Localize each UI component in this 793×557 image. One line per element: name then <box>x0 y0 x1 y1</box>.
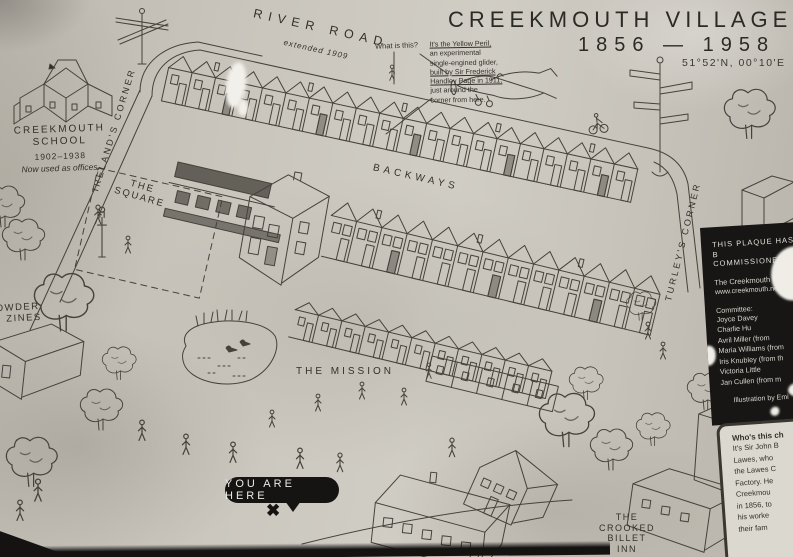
plaque-credit: Illustration by Emi <box>721 392 793 405</box>
billet-line: CROOKED <box>588 523 666 534</box>
commission-plaque: THIS PLAQUE HAS B COMMISSIONED BY The Cr… <box>700 222 793 426</box>
label-powder-magazines: OWDER ZINES <box>0 301 42 325</box>
plaque-photo: CREEKMOUTH VILLAGE 1856 — 1958 51°52'N, … <box>0 0 793 557</box>
who-is-this-panel: Who's this ch It's Sir John B Lawes, who… <box>716 416 793 557</box>
pond <box>183 310 277 384</box>
label-whats-this: What is this? <box>375 40 418 50</box>
glider-annotation-text: It's the Yellow Peril, an experimental s… <box>429 38 502 104</box>
school-building <box>14 60 112 124</box>
school-caption: CREEKMOUTH SCHOOL 1902–1938 Now used as … <box>5 122 115 175</box>
paint-splat <box>238 100 248 116</box>
label-the-mission: THE MISSION <box>296 366 394 377</box>
you-are-here-bubble: YOU ARE HERE <box>225 477 339 503</box>
fingerpost-right <box>630 57 692 176</box>
you-are-here-marker: ✖ <box>266 501 280 521</box>
cyclist <box>587 112 609 134</box>
annotation-line: corner from here. <box>430 94 502 105</box>
powder-magazines <box>0 318 85 405</box>
map-title-years: 1856 — 1958 <box>578 34 775 57</box>
billet-line: THE <box>588 512 666 523</box>
gabled-house <box>464 440 564 536</box>
powder-line: ZINES <box>6 312 42 325</box>
map-title: CREEKMOUTH VILLAGE <box>448 7 792 33</box>
fingerpost-left <box>116 9 168 65</box>
allotments <box>162 161 292 243</box>
trees <box>0 89 775 486</box>
stain <box>770 407 780 417</box>
river-road-kerbs <box>30 42 700 544</box>
middle-terrace <box>322 200 664 335</box>
map-coordinates: 51°52'N, 00°10'E <box>682 57 786 69</box>
